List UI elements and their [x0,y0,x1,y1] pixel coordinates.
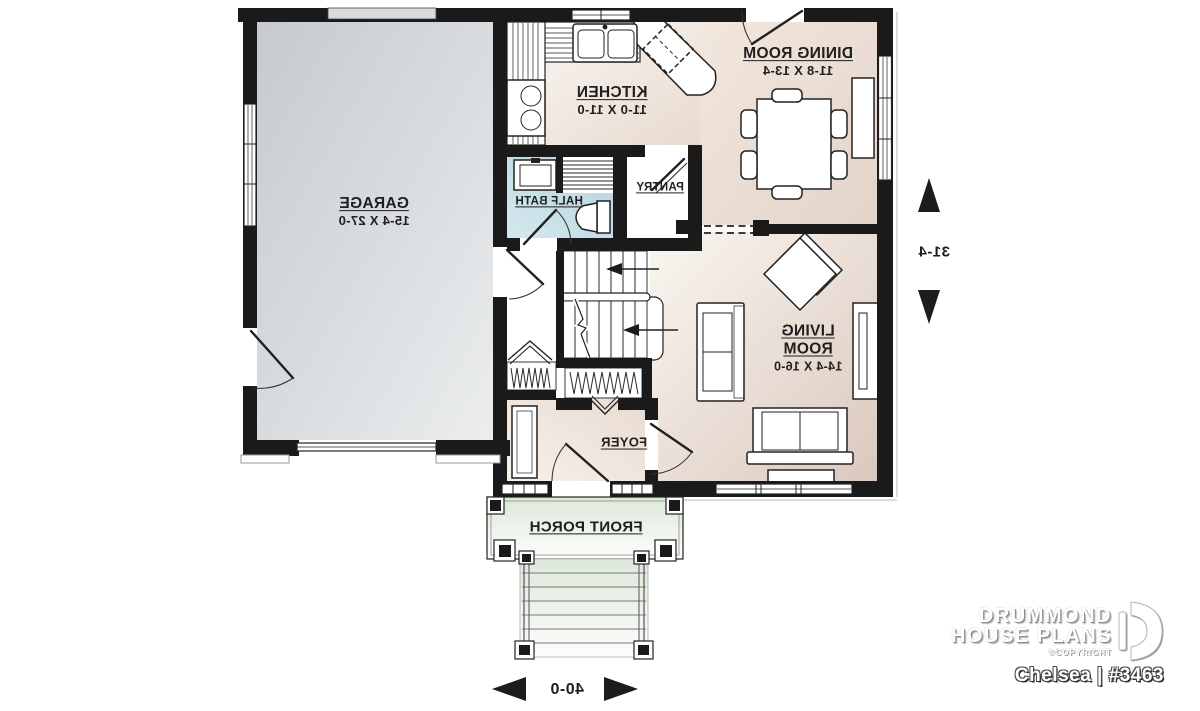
garage-door-jamb [436,455,500,463]
dining-chair [831,151,847,179]
porch-post-core [669,500,680,511]
room-name: HALF BATH [515,195,583,208]
wall-pantry-dining [688,145,702,251]
room-name: LIVING ROOM [771,323,845,359]
wall-stair-left [556,246,564,368]
half-bath-label: HALF BATH [515,195,583,208]
width-dimension-label: 40-0 [550,681,584,699]
wall-dining-living [766,224,877,234]
dining-buffet [852,78,874,158]
room-dims: 11-0 X 11-0 [577,103,648,118]
floor-plan-page: GARAGE 15-4 X 27-0 KITCHEN 11-0 X 11-0 D… [0,0,1200,711]
plan-name: Chelsea | #3463 [951,665,1164,687]
wall-foyer-closet-left [556,398,592,410]
garage-top-recess [328,8,436,19]
step-post-core [637,554,646,562]
dimension-arrow-left-icon [492,677,526,701]
room-name: GARAGE [338,195,409,213]
dining-table [757,99,831,189]
front-door-opening [552,481,610,497]
porch-steps [520,559,648,657]
dining-chair [772,89,802,102]
dimension-arrow-up-icon [918,178,940,212]
step-newel-core [638,645,649,655]
porch-post-core [490,500,501,511]
living-room-label: LIVING ROOM 14-4 X 16-0 [771,323,845,374]
garage-entry-opening [493,247,507,297]
dining-chair [741,110,757,138]
porch-post-core [660,545,672,557]
toilet-tank [597,201,610,233]
garage-door-jamb [241,455,289,463]
armchair-right [853,303,879,399]
room-dims: 15-4 X 27-0 [338,214,409,229]
room-name: FRONT PORCH [529,518,642,535]
dimension-arrow-right-icon [604,677,638,701]
dining-room-label: DINING ROOM 11-8 X 13-4 [743,45,853,79]
stove [507,80,545,136]
sidelight-window [502,484,548,494]
wall-bath-pantry [613,157,627,251]
wall-stair-bottom [556,358,652,368]
porch-post-core [499,545,511,557]
branding-block: DRUMMOND HOUSE PLANS ©COPYRIGHT Chelsea … [951,600,1164,687]
front-porch-label: FRONT PORCH [529,518,642,535]
drummond-logo-mark-icon [1118,600,1164,662]
sofa-front-edge [747,452,853,464]
room-name: PANTRY [636,181,684,194]
basement-stair-floor [563,157,613,193]
room-name: FOYER [601,436,647,451]
pantry-label: PANTRY [636,181,684,194]
brand-company-line1: DRUMMOND [951,606,1112,626]
foyer-label: FOYER [601,436,647,451]
dining-chair [772,186,802,199]
wall-bath-stair-stub [556,157,563,193]
brand-row: DRUMMOND HOUSE PLANS ©COPYRIGHT [951,600,1164,662]
pantry-door-opening [645,145,688,157]
room-name: KITCHEN [577,84,648,102]
sink-faucet [603,25,608,30]
archway-stub-left [676,220,702,234]
step-newel-core [519,645,530,655]
bath-faucet [531,158,540,163]
room-dims: 14-4 X 16-0 [771,359,845,373]
wall-garage-left [243,8,257,456]
stair-upper-flight [563,251,647,293]
dining-chair [741,151,757,179]
garage-label: GARAGE 15-4 X 27-0 [338,195,409,229]
step-post-core [522,554,531,562]
dining-chair [831,110,847,138]
room-dims: 11-8 X 13-4 [743,64,853,79]
brand-company-line2: HOUSE PLANS [951,626,1112,646]
brand-text: DRUMMOND HOUSE PLANS ©COPYRIGHT [951,606,1112,657]
foyer-console [512,406,537,478]
dining-window [879,56,892,180]
brand-copyright: ©COPYRIGHT [951,648,1112,657]
bath-door-opening [520,238,557,251]
stair-rail [558,293,650,301]
wall-closet-bottom-left [493,390,556,400]
garage-window [244,104,256,226]
depth-dimension-label: 31-4 [918,244,950,261]
room-name: DINING ROOM [743,45,853,63]
dimension-arrow-down-icon [918,290,940,324]
wall-garage-bottom [243,440,299,456]
kitchen-label: KITCHEN 11-0 X 11-0 [577,84,648,118]
